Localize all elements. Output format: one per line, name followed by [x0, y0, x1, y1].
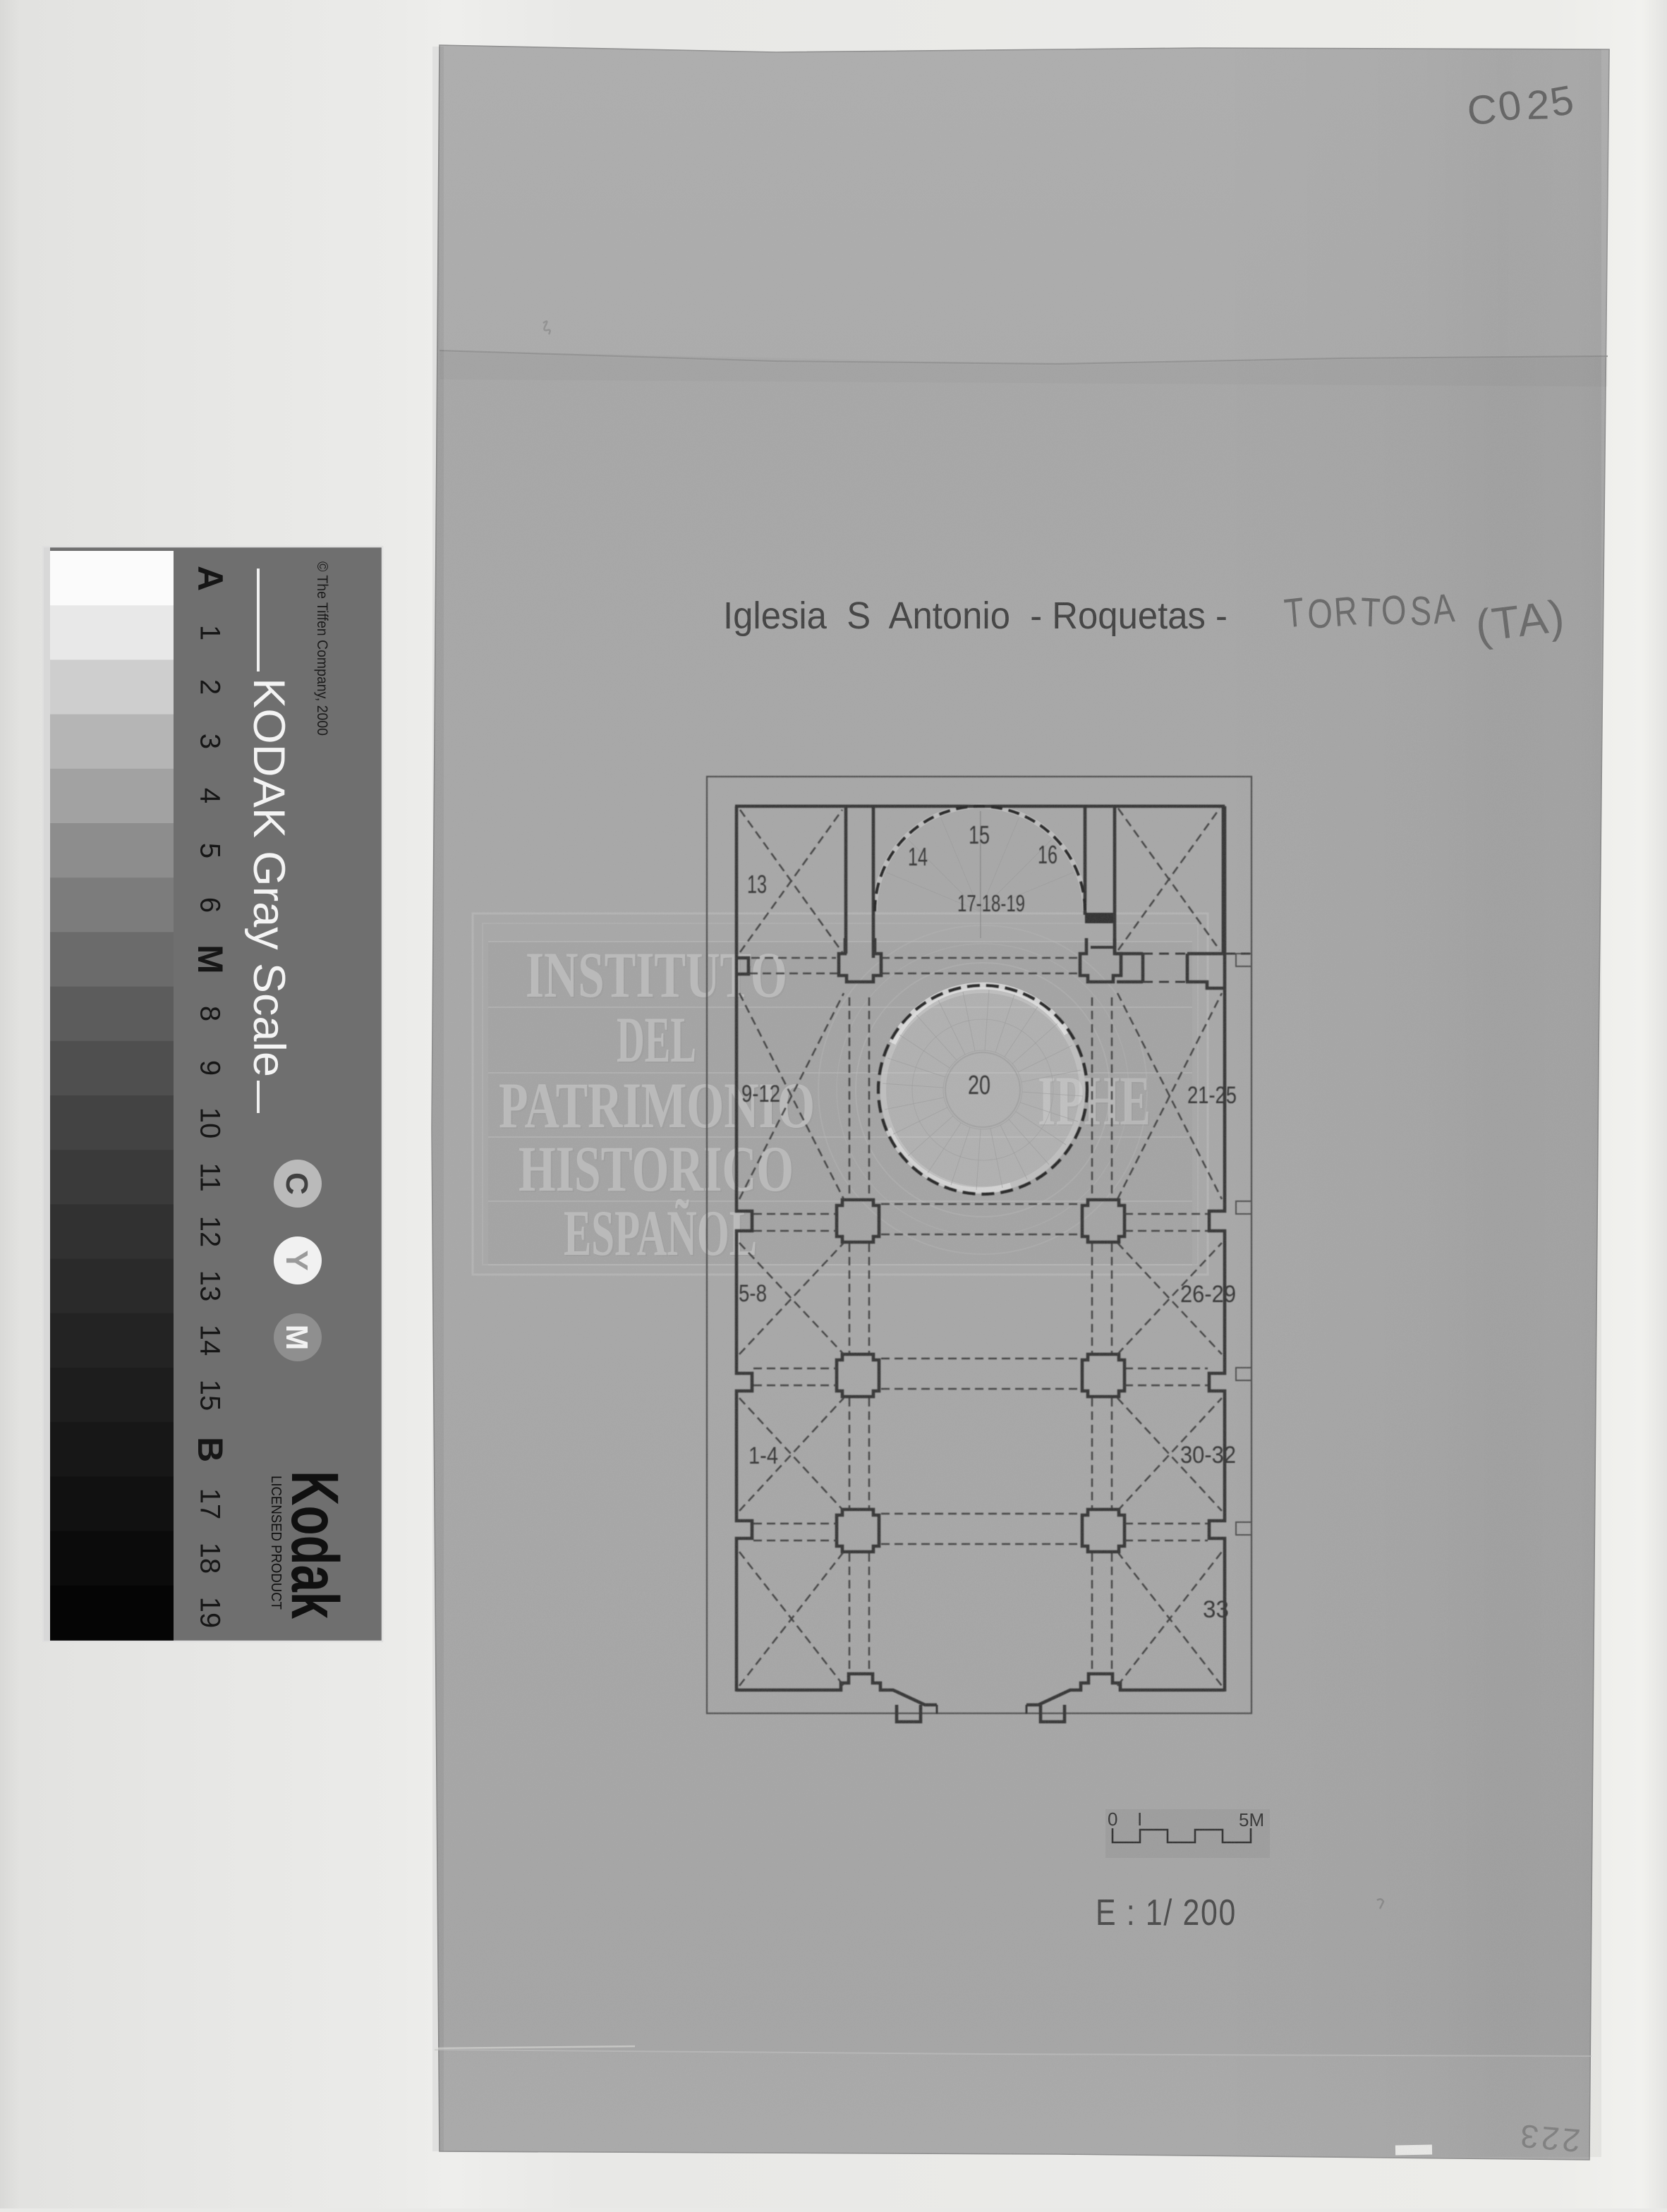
svg-text:2: 2 — [195, 679, 226, 695]
svg-text:C: C — [279, 1172, 314, 1195]
svg-text:17: 17 — [195, 1488, 226, 1520]
svg-text:4: 4 — [195, 788, 226, 803]
svg-text:9: 9 — [195, 1060, 226, 1076]
svg-text:19: 19 — [195, 1597, 226, 1629]
svg-text:M: M — [279, 1325, 314, 1351]
svg-text:Kodak: Kodak — [277, 1471, 352, 1619]
svg-text:Y: Y — [279, 1250, 314, 1270]
svg-text:5: 5 — [195, 843, 226, 858]
svg-text:8: 8 — [195, 1006, 226, 1021]
svg-text:14: 14 — [195, 1325, 226, 1356]
svg-text:KODAK Gray Scale: KODAK Gray Scale — [244, 678, 293, 1077]
svg-text:3: 3 — [195, 734, 226, 749]
svg-text:13: 13 — [195, 1270, 226, 1302]
svg-text:M: M — [190, 944, 230, 974]
svg-text:6: 6 — [195, 897, 226, 913]
svg-text:A: A — [190, 566, 230, 591]
svg-text:10: 10 — [195, 1107, 226, 1139]
svg-text:12: 12 — [195, 1216, 226, 1248]
svg-text:18: 18 — [195, 1543, 226, 1574]
svg-text:11: 11 — [195, 1162, 226, 1192]
svg-text:1: 1 — [195, 625, 226, 640]
svg-text:15: 15 — [195, 1380, 226, 1411]
svg-text:B: B — [190, 1437, 230, 1462]
svg-text:LICENSED PRODUCT: LICENSED PRODUCT — [268, 1476, 284, 1610]
svg-text:© The Tiffen Company, 2000: © The Tiffen Company, 2000 — [314, 561, 330, 736]
